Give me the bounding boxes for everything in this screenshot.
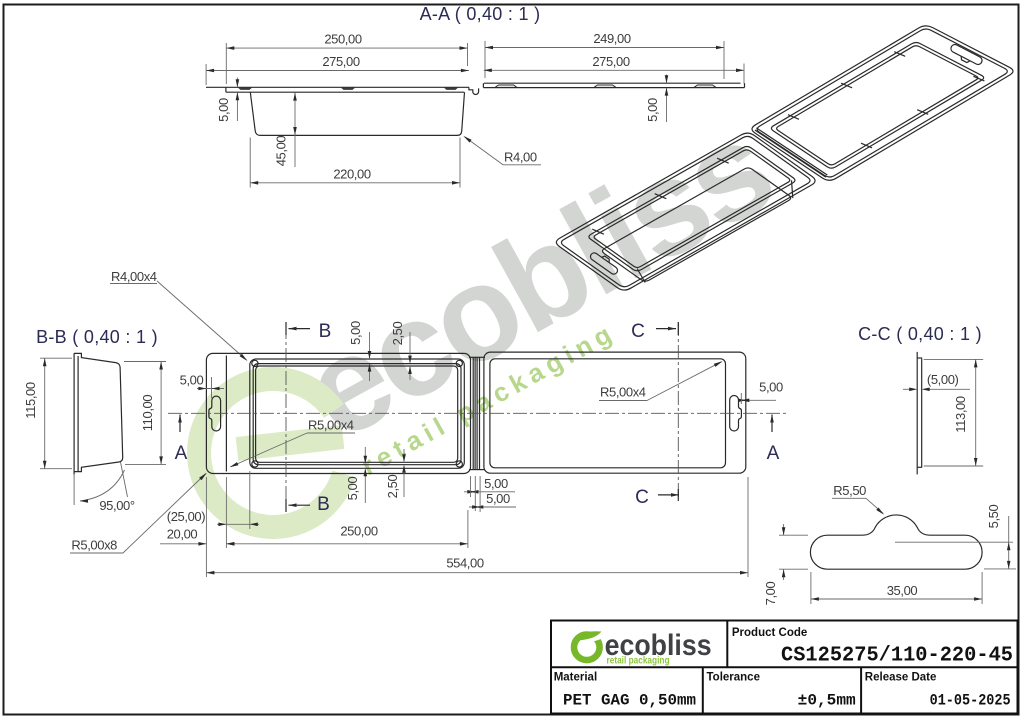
svg-text:R4,00: R4,00 <box>504 150 537 165</box>
svg-text:Tolerance: Tolerance <box>707 672 760 684</box>
svg-text:113,00: 113,00 <box>953 396 968 433</box>
svg-text:B: B <box>319 321 332 342</box>
svg-text:5,50: 5,50 <box>986 504 1001 528</box>
svg-text:220,00: 220,00 <box>333 167 371 182</box>
svg-text:PET GAG 0,50mm: PET GAG 0,50mm <box>563 692 696 710</box>
svg-text:CS125275/110-220-45: CS125275/110-220-45 <box>781 644 1013 667</box>
svg-text:45,00: 45,00 <box>274 136 289 167</box>
svg-text:115,00: 115,00 <box>23 382 38 419</box>
svg-text:95,00°: 95,00° <box>99 498 135 513</box>
svg-text:R5,00x4: R5,00x4 <box>600 385 646 400</box>
svg-text:20,00: 20,00 <box>167 527 198 542</box>
svg-text:5,00: 5,00 <box>345 476 360 500</box>
svg-text:35,00: 35,00 <box>887 583 918 598</box>
svg-text:(5,00): (5,00) <box>927 372 959 387</box>
svg-text:retail packaging: retail packaging <box>607 656 670 667</box>
svg-text:R5,00x8: R5,00x8 <box>71 538 117 553</box>
svg-text:110,00: 110,00 <box>140 395 155 432</box>
svg-text:7,00: 7,00 <box>763 581 778 605</box>
svg-text:Material: Material <box>554 672 597 684</box>
svg-text:5,00: 5,00 <box>348 321 363 345</box>
svg-text:Release Date: Release Date <box>865 672 937 684</box>
svg-text:C-C ( 0,40 : 1 ): C-C ( 0,40 : 1 ) <box>858 324 982 344</box>
svg-text:R5,50: R5,50 <box>833 483 866 498</box>
svg-text:249,00: 249,00 <box>593 31 631 46</box>
svg-text:275,00: 275,00 <box>322 54 360 69</box>
svg-text:C: C <box>631 321 645 342</box>
svg-text:5,00: 5,00 <box>180 373 204 388</box>
svg-text:C: C <box>635 487 649 508</box>
svg-text:250,00: 250,00 <box>340 524 378 539</box>
svg-text:5,00: 5,00 <box>486 491 510 506</box>
svg-text:554,00: 554,00 <box>446 556 484 571</box>
svg-text:275,00: 275,00 <box>592 54 630 69</box>
svg-text:A: A <box>767 443 780 464</box>
svg-text:5,00: 5,00 <box>484 476 508 491</box>
svg-text:250,00: 250,00 <box>324 32 362 47</box>
svg-text:B: B <box>317 494 330 515</box>
svg-text:A: A <box>175 443 188 464</box>
svg-text:B-B ( 0,40 : 1 ): B-B ( 0,40 : 1 ) <box>36 327 158 347</box>
svg-text:R4,00x4: R4,00x4 <box>111 269 157 284</box>
svg-text:(25,00): (25,00) <box>167 509 205 524</box>
svg-text:R5,00x4: R5,00x4 <box>308 418 354 433</box>
svg-text:2,50: 2,50 <box>385 474 400 498</box>
svg-text:±0,5mm: ±0,5mm <box>798 692 856 710</box>
svg-text:A-A ( 0,40 : 1 ): A-A ( 0,40 : 1 ) <box>420 4 541 24</box>
svg-text:5,00: 5,00 <box>759 380 783 395</box>
svg-text:2,50: 2,50 <box>390 321 405 345</box>
svg-text:5,00: 5,00 <box>645 98 660 122</box>
svg-text:Product Code: Product Code <box>732 627 807 639</box>
svg-text:01-05-2025: 01-05-2025 <box>930 692 1011 710</box>
svg-text:5,00: 5,00 <box>216 98 231 122</box>
